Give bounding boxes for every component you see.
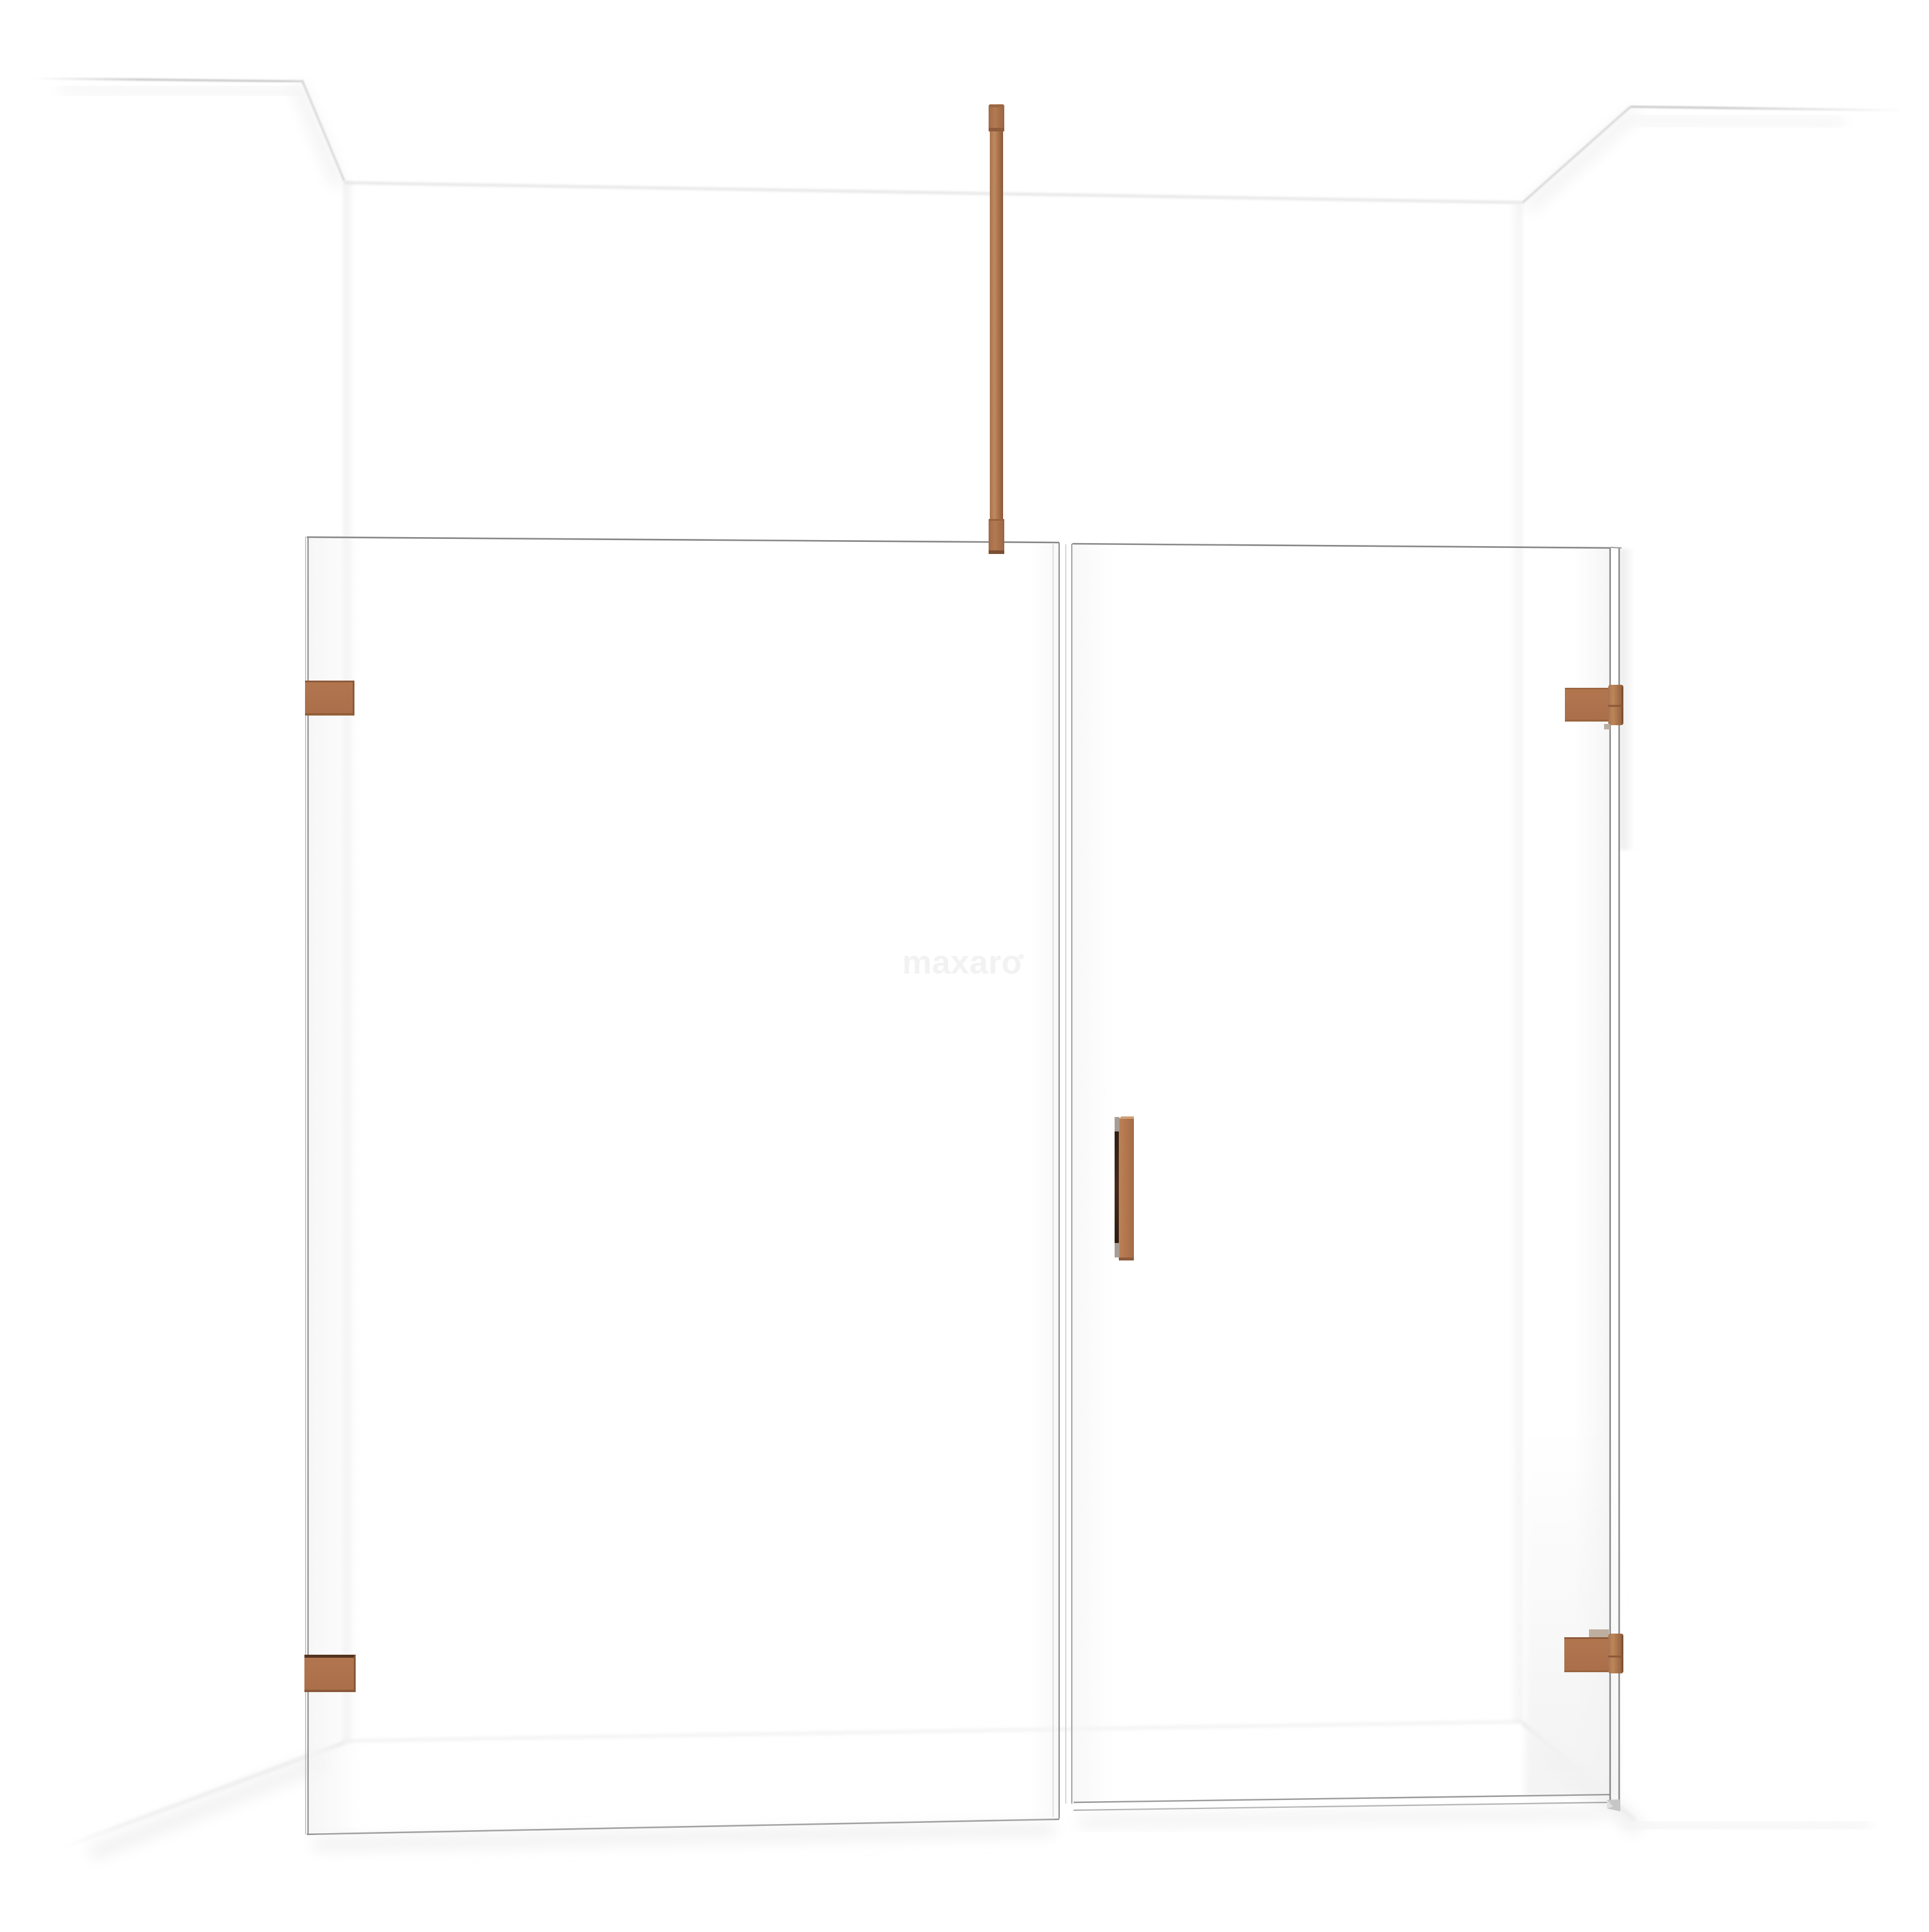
- svg-text:maxaro: maxaro: [902, 943, 1022, 981]
